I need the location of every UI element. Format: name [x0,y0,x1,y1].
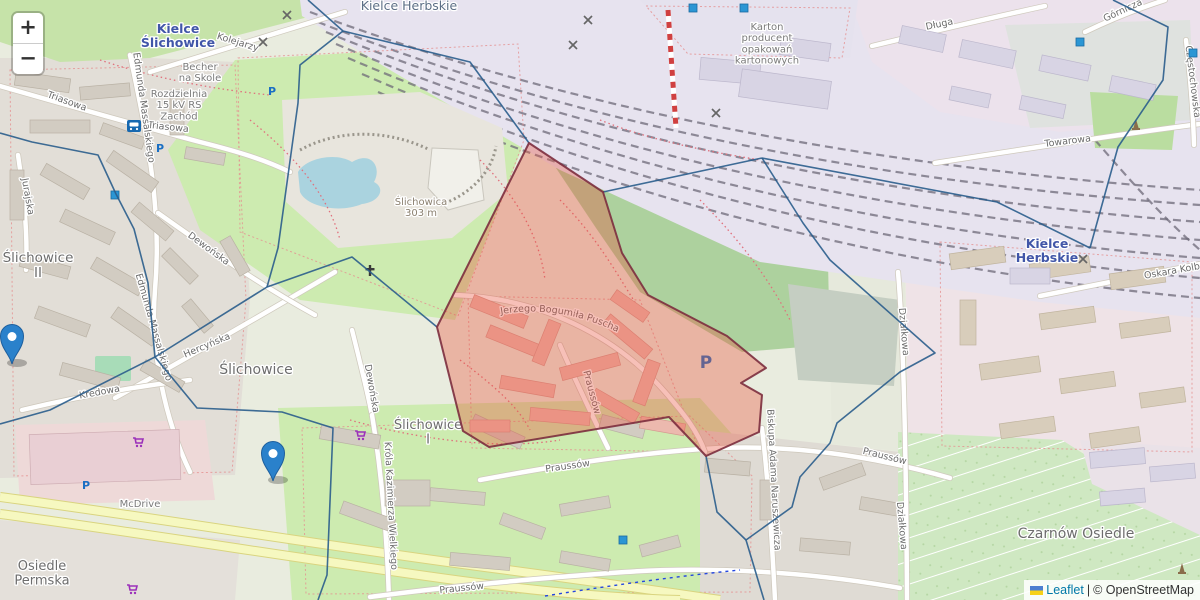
place-label: McDrive [120,499,161,510]
bus-stop-icon [127,120,141,132]
map-tiles-svg: Kielce HerbskieKielceŚlichowiceKielceHer… [0,0,1200,600]
zoom-in-button[interactable]: + [13,13,43,44]
place-label: Ślichowice [219,360,292,378]
building [1010,268,1050,284]
green-area [1090,92,1178,150]
shop-icon [1189,49,1197,57]
place-label: Becherna Skole [179,62,221,84]
zoom-control: + − [13,13,43,74]
parking-icon: P [268,85,276,98]
attribution-bar: Leaflet|© OpenStreetMap [1024,580,1200,600]
marker-shadow [7,359,27,367]
shop-icon [1076,38,1084,46]
marker-shadow [268,476,288,484]
parking-icon: P [156,142,164,155]
leaflet-link[interactable]: Leaflet [1046,583,1084,597]
shop-icon [740,4,748,12]
place-label: OsiedlePermska [14,559,69,589]
place-label: Kielce Herbskie [361,0,458,13]
ukraine-flag-icon [1030,586,1043,595]
shop-icon [619,536,627,544]
scrub-area [788,284,900,386]
zoom-out-button[interactable]: − [13,44,43,74]
place-label: Czarnów Osiedle [1018,526,1135,542]
leaflet-map-canvas[interactable]: Kielce HerbskieKielceŚlichowiceKielceHer… [0,0,1200,600]
building [29,429,181,484]
parking-icon: P [82,479,90,492]
quarry-pond [298,157,380,208]
marker-dot [269,449,278,458]
building [960,300,976,345]
building [30,120,90,133]
marker-dot [8,332,17,341]
marker-body [262,442,285,482]
osm-copyright: © OpenStreetMap [1093,583,1194,597]
attribution-separator: | [1087,583,1090,597]
shop-icon [689,4,697,12]
